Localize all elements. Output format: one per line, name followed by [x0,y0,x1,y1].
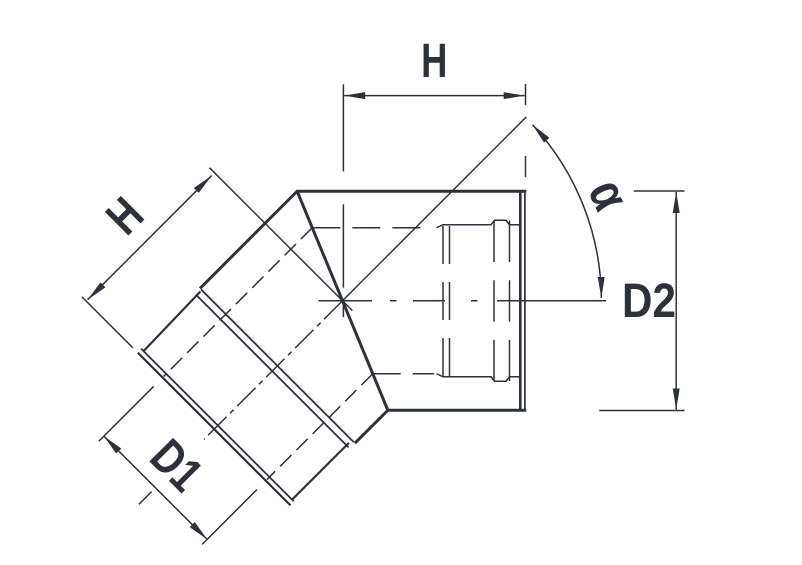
svg-text:H: H [96,187,154,245]
svg-text:α: α [577,171,641,219]
svg-text:D1: D1 [140,429,213,502]
svg-text:D2: D2 [622,273,676,327]
svg-text:H: H [421,34,447,88]
